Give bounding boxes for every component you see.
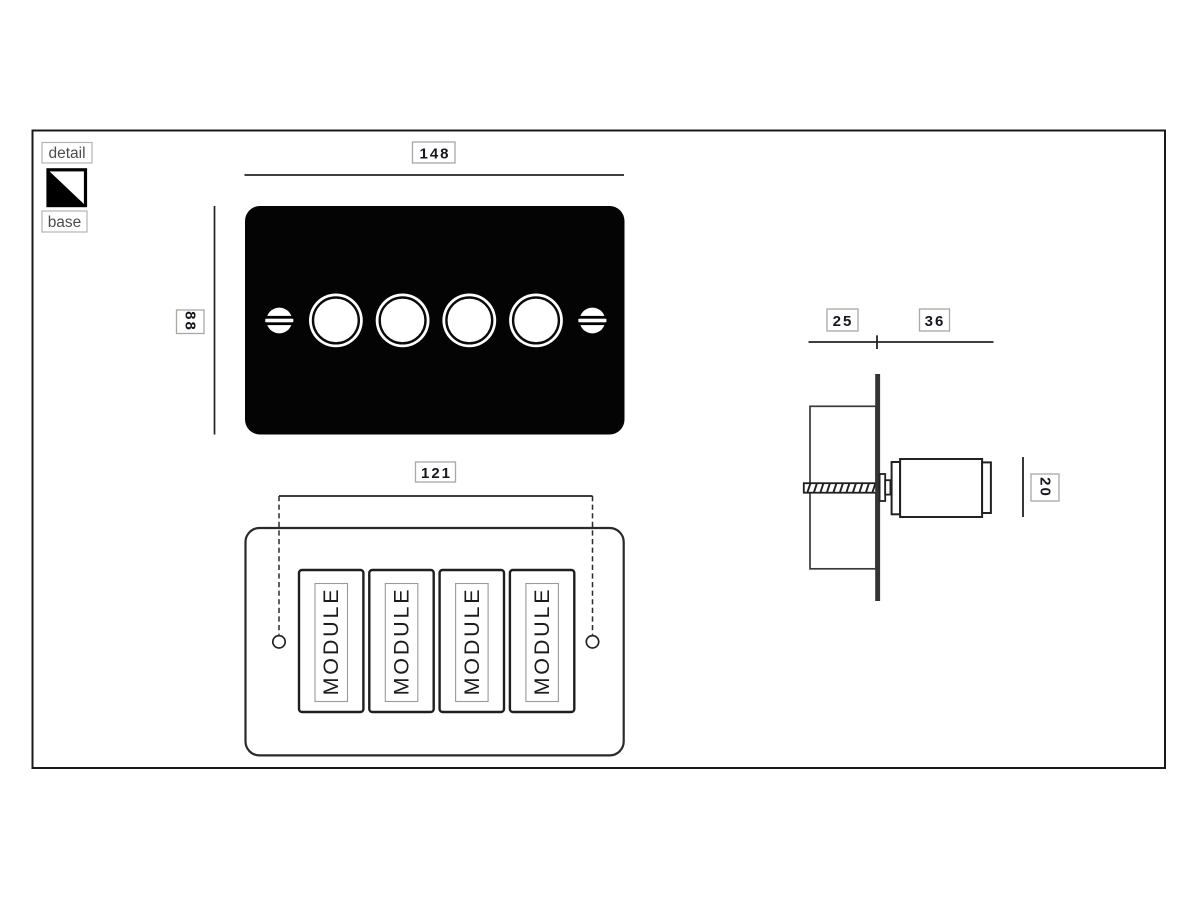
svg-text:base: base — [48, 214, 82, 231]
svg-text:121: 121 — [421, 465, 452, 482]
svg-text:detail: detail — [48, 145, 85, 162]
svg-text:MODULE: MODULE — [530, 587, 554, 696]
svg-text:36: 36 — [925, 313, 946, 330]
svg-text:MODULE: MODULE — [460, 587, 484, 696]
svg-text:148: 148 — [419, 146, 450, 163]
svg-text:25: 25 — [833, 313, 854, 330]
svg-text:MODULE: MODULE — [319, 587, 343, 696]
svg-text:MODULE: MODULE — [390, 587, 414, 696]
svg-text:20: 20 — [1037, 477, 1054, 498]
svg-text:88: 88 — [182, 311, 199, 332]
